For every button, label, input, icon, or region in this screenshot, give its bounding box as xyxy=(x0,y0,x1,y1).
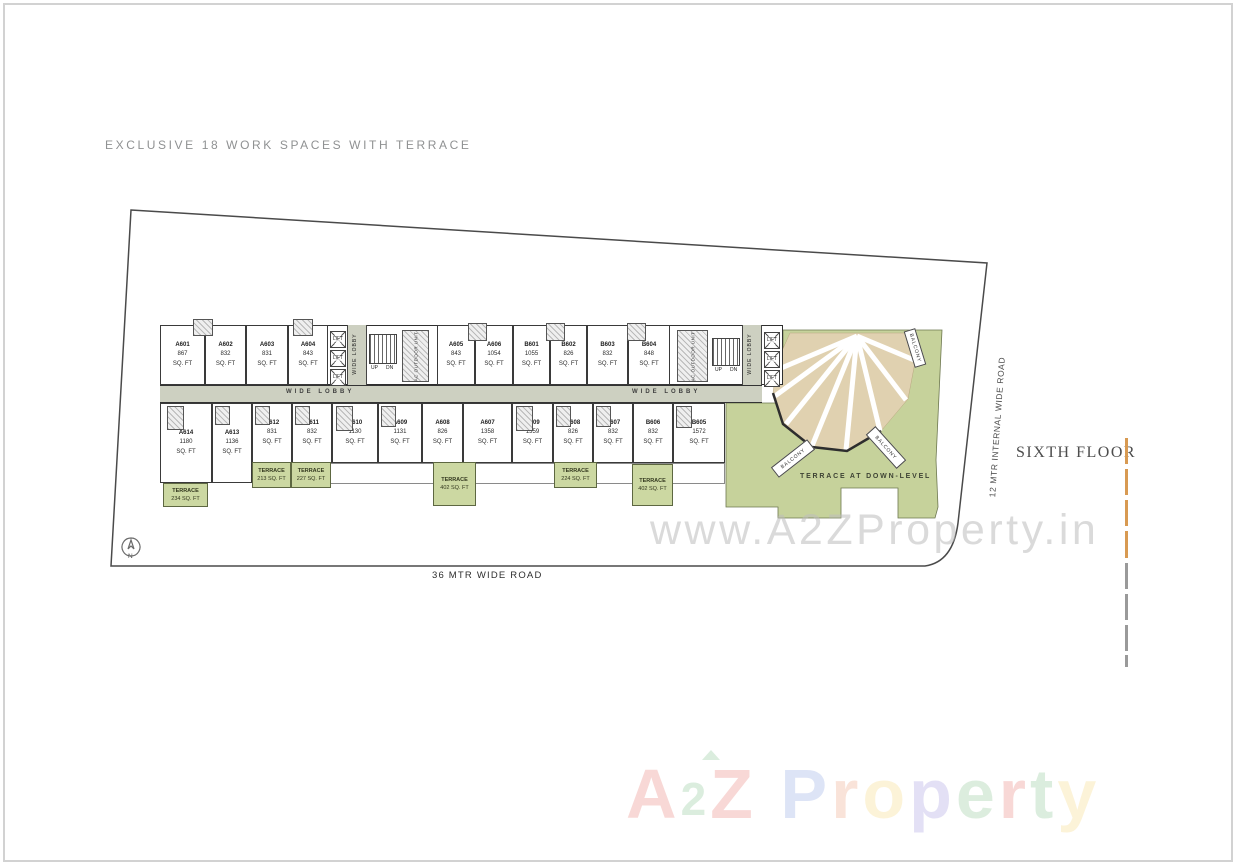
unit-id: B604 xyxy=(639,341,658,350)
unit-area-suffix: SQ. FT xyxy=(484,360,503,369)
unit-area-suffix: SQ. FT xyxy=(523,438,542,447)
watermark-url: www.A2ZProperty.in xyxy=(650,506,1099,555)
terrace-box: TERRACE234 SQ. FT xyxy=(163,483,208,507)
terrace-label: TERRACE xyxy=(638,477,666,486)
road-label-bottom: 36 MTR WIDE ROAD xyxy=(432,570,543,581)
logo-letter: P xyxy=(780,755,831,833)
terrace-box: TERRACE227 SQ. FT xyxy=(291,462,331,488)
dash-segment xyxy=(1125,594,1128,620)
toilet-hatch xyxy=(627,323,646,341)
unit-area: 831 xyxy=(262,428,281,437)
unit-area-suffix: SQ. FT xyxy=(302,438,321,447)
toilet-hatch xyxy=(556,406,571,427)
terrace-box: TERRACE224 SQ. FT xyxy=(554,462,597,488)
stair-up-label: UP xyxy=(371,366,383,372)
lift-box: LIFT xyxy=(330,350,346,367)
dash-segment xyxy=(1125,625,1128,651)
unit-id: A608 xyxy=(433,419,452,428)
terrace-label: TERRACE xyxy=(171,487,199,496)
unit-area-suffix: SQ. FT xyxy=(446,360,465,369)
unit-id: B602 xyxy=(559,341,578,350)
dash-segment xyxy=(1125,655,1128,667)
terrace-label: TERRACE xyxy=(440,476,468,485)
unit-id: A607 xyxy=(478,419,497,428)
ac-unit-label: AC OUTDOOR UNIT xyxy=(690,331,695,381)
lift-label: LIFT xyxy=(332,337,344,342)
logo-letter: r xyxy=(999,755,1030,833)
lift-box: LIFT xyxy=(764,332,780,349)
unit-area-suffix: SQ. FT xyxy=(176,448,195,457)
stair-up-label: UP xyxy=(715,368,727,374)
toilet-hatch xyxy=(516,406,533,431)
stair-dn-label: DN xyxy=(730,368,742,374)
unit-id: A606 xyxy=(484,341,503,350)
unit-area: 1055 xyxy=(522,350,541,359)
logo-letter: A xyxy=(626,755,681,833)
lobby-strip-label: WIDE LOBBY xyxy=(353,328,361,380)
unit-area-suffix: SQ. FT xyxy=(257,360,276,369)
unit-area: 1131 xyxy=(390,428,409,437)
unit-area: 832 xyxy=(302,428,321,437)
toilet-hatch xyxy=(381,406,396,427)
unit-id: A603 xyxy=(257,341,276,350)
corridor-label: WIDE LOBBY xyxy=(286,389,376,399)
unit-area: 831 xyxy=(257,350,276,359)
ac-outdoor-unit: AC OUTDOOR UNIT xyxy=(402,330,429,382)
unit-area: 843 xyxy=(298,350,317,359)
unit-id: A605 xyxy=(446,341,465,350)
dash-segment xyxy=(1125,563,1128,589)
terrace-box: TERRACE402 SQ. FT xyxy=(632,464,673,506)
unit-id: A604 xyxy=(298,341,317,350)
floor-label: SIXTH FLOOR xyxy=(1016,444,1136,462)
toilet-hatch xyxy=(167,406,184,430)
unit-area-suffix: SQ. FT xyxy=(598,360,617,369)
page-canvas: EXCLUSIVE 18 WORK SPACES WITH TERRACE WI… xyxy=(0,0,1238,865)
unit-A608: A608826SQ. FT xyxy=(422,403,463,463)
unit-area: 1572 xyxy=(689,428,708,437)
toilet-hatch xyxy=(193,319,213,336)
unit-B601: B6011055SQ. FT xyxy=(513,325,550,385)
unit-id: A613 xyxy=(222,429,241,438)
logo-letter xyxy=(757,755,780,833)
unit-A607: A6071358SQ. FT xyxy=(463,403,512,463)
unit-area: 843 xyxy=(446,350,465,359)
unit-area-suffix: SQ. FT xyxy=(522,360,541,369)
unit-area: 1358 xyxy=(478,428,497,437)
toilet-hatch xyxy=(596,406,611,427)
unit-area-suffix: SQ. FT xyxy=(390,438,409,447)
unit-area-suffix: SQ. FT xyxy=(689,438,708,447)
terrace-down-level-label: TERRACE AT DOWN-LEVEL xyxy=(800,473,931,480)
terrace-label: TERRACE xyxy=(257,467,285,476)
lift-box: LIFT xyxy=(330,331,346,348)
lift-label: LIFT xyxy=(766,357,778,362)
page-title: EXCLUSIVE 18 WORK SPACES WITH TERRACE xyxy=(105,138,471,152)
ac-outdoor-unit: AC OUTDOOR UNIT xyxy=(677,330,708,382)
logo-letter: Z xyxy=(710,755,757,833)
staircase xyxy=(712,338,740,366)
watermark-logo: A2Z Property xyxy=(626,754,1100,834)
unit-area-suffix: SQ. FT xyxy=(559,360,578,369)
toilet-hatch xyxy=(255,406,270,425)
logo-letter: o xyxy=(862,755,909,833)
unit-area: 1180 xyxy=(176,438,195,447)
unit-area-suffix: SQ. FT xyxy=(603,438,622,447)
toilet-hatch xyxy=(215,406,230,425)
logo-letter: y xyxy=(1057,755,1100,833)
unit-B606: B606832SQ. FT xyxy=(633,403,673,463)
dash-segment xyxy=(1125,469,1128,495)
staircase xyxy=(369,334,397,364)
lift-box: LIFT xyxy=(764,370,780,387)
toilet-hatch xyxy=(293,319,313,336)
terrace-area: 227 SQ. FT xyxy=(297,476,325,483)
unit-area: 867 xyxy=(173,350,192,359)
dash-segment xyxy=(1125,438,1128,464)
unit-area: 826 xyxy=(563,428,582,437)
unit-area-suffix: SQ. FT xyxy=(262,438,281,447)
terrace-area: 402 SQ. FT xyxy=(638,486,666,493)
logo-letter: p xyxy=(909,755,956,833)
unit-area-suffix: SQ. FT xyxy=(216,360,235,369)
unit-id: B605 xyxy=(689,419,708,428)
unit-area: 826 xyxy=(559,350,578,359)
unit-id: B601 xyxy=(522,341,541,350)
unit-B603: B603832SQ. FT xyxy=(587,325,628,385)
logo-letter: e xyxy=(956,755,999,833)
dash-segment xyxy=(1125,531,1128,558)
stair-dn-label: DN xyxy=(386,366,398,372)
dash-segment xyxy=(1125,500,1128,526)
unit-id: B606 xyxy=(643,419,662,428)
unit-area: 826 xyxy=(433,428,452,437)
logo-letter: r xyxy=(831,755,862,833)
terrace-label: TERRACE xyxy=(297,467,325,476)
unit-area: 832 xyxy=(598,350,617,359)
toilet-hatch xyxy=(295,406,310,425)
unit-area-suffix: SQ. FT xyxy=(433,438,452,447)
lift-box: LIFT xyxy=(764,351,780,368)
unit-area-suffix: SQ. FT xyxy=(298,360,317,369)
unit-area-suffix: SQ. FT xyxy=(222,448,241,457)
toilet-hatch xyxy=(468,323,487,341)
lift-label: LIFT xyxy=(332,356,344,361)
logo-letter: t xyxy=(1030,755,1057,833)
unit-area: 832 xyxy=(643,428,662,437)
unit-area-suffix: SQ. FT xyxy=(643,438,662,447)
lift-box: LIFT xyxy=(330,369,346,386)
terrace-box: TERRACE213 SQ. FT xyxy=(252,462,291,488)
toilet-hatch xyxy=(336,406,353,431)
unit-area-suffix: SQ. FT xyxy=(639,360,658,369)
toilet-hatch xyxy=(676,406,692,428)
terrace-area: 402 SQ. FT xyxy=(440,485,468,492)
unit-id: A601 xyxy=(173,341,192,350)
lift-label: LIFT xyxy=(332,375,344,380)
lift-label: LIFT xyxy=(766,376,778,381)
unit-area-suffix: SQ. FT xyxy=(345,438,364,447)
lobby-strip-label: WIDE LOBBY xyxy=(748,328,756,380)
toilet-hatch xyxy=(546,323,565,341)
terrace-area: 213 SQ. FT xyxy=(257,476,285,483)
unit-area-suffix: SQ. FT xyxy=(563,438,582,447)
unit-area: 1054 xyxy=(484,350,503,359)
logo-house-icon xyxy=(702,750,720,760)
lift-label: LIFT xyxy=(766,338,778,343)
unit-area-suffix: SQ. FT xyxy=(173,360,192,369)
unit-id: B603 xyxy=(598,341,617,350)
compass-label: N xyxy=(128,553,133,560)
unit-id: A614 xyxy=(176,429,195,438)
terrace-label: TERRACE xyxy=(561,467,589,476)
corridor-label: WIDE LOBBY xyxy=(632,389,722,399)
terrace-box: TERRACE402 SQ. FT xyxy=(433,462,476,506)
unit-area: 1136 xyxy=(222,438,241,447)
terrace-area: 234 SQ. FT xyxy=(171,496,199,503)
ac-unit-label: AC OUTDOOR UNIT xyxy=(413,331,418,381)
terrace-area: 224 SQ. FT xyxy=(561,476,589,483)
unit-area: 832 xyxy=(216,350,235,359)
unit-id: A602 xyxy=(216,341,235,350)
logo-letter: 2 xyxy=(681,773,711,825)
unit-area: 832 xyxy=(603,428,622,437)
unit-area: 848 xyxy=(639,350,658,359)
unit-A603: A603831SQ. FT xyxy=(246,325,288,385)
unit-area-suffix: SQ. FT xyxy=(478,438,497,447)
